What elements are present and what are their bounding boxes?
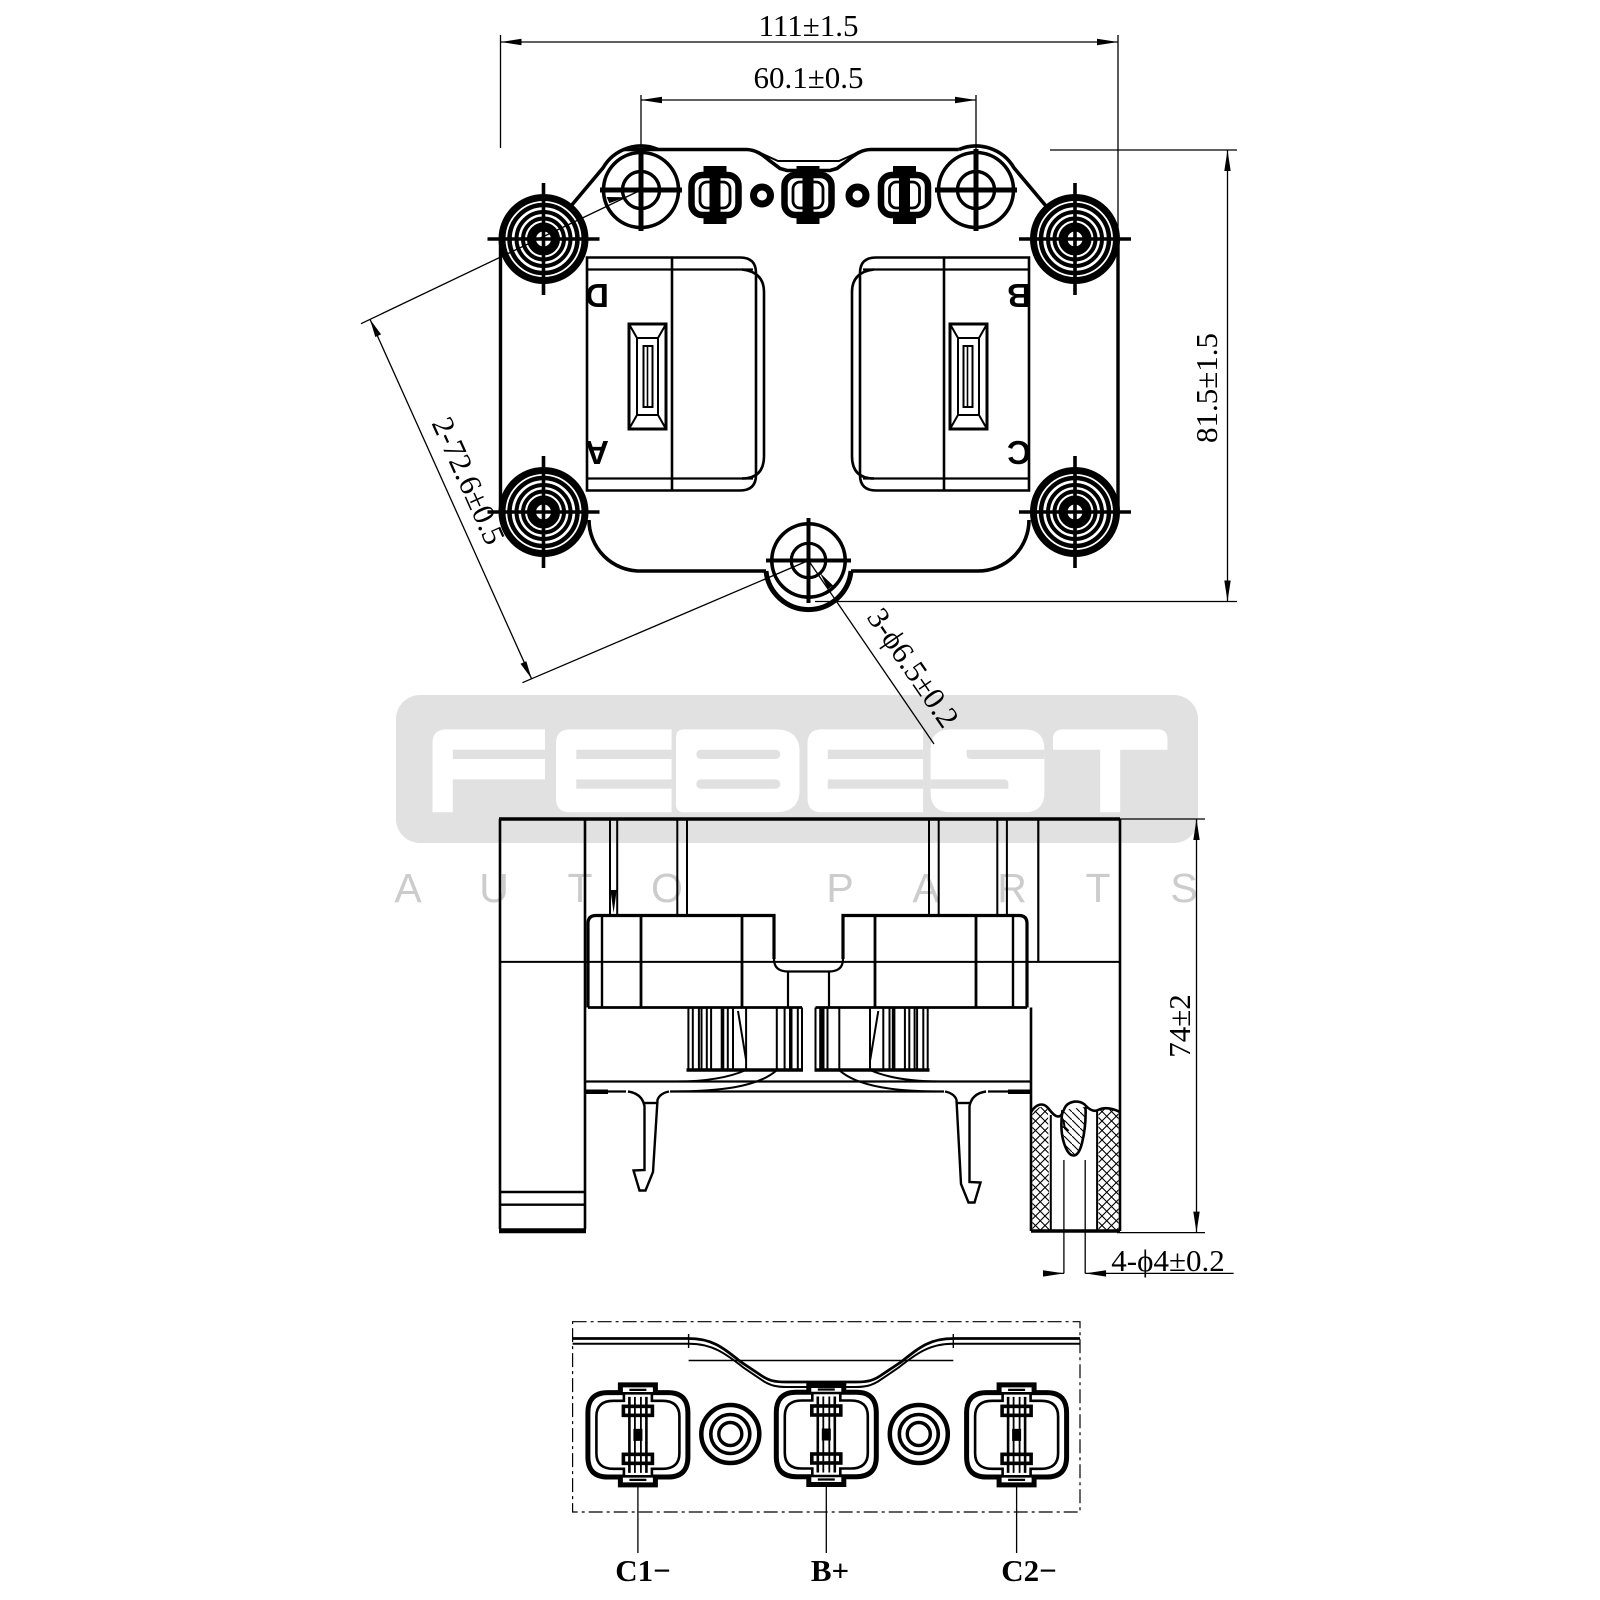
svg-text:4-ϕ4±0.2: 4-ϕ4±0.2	[1111, 1243, 1224, 1278]
svg-text:81.5±1.5: 81.5±1.5	[1189, 333, 1224, 443]
svg-text:S: S	[1170, 865, 1197, 911]
svg-text:D: D	[585, 277, 609, 314]
svg-text:74±2: 74±2	[1162, 994, 1197, 1058]
svg-text:P: P	[826, 865, 853, 911]
svg-text:B: B	[1007, 277, 1031, 314]
svg-text:111±1.5: 111±1.5	[759, 8, 859, 43]
svg-text:A: A	[394, 865, 422, 911]
svg-text:60.1±0.5: 60.1±0.5	[753, 60, 863, 95]
svg-text:C2−: C2−	[1001, 1553, 1057, 1588]
svg-text:T: T	[1085, 865, 1110, 911]
svg-text:B+: B+	[811, 1553, 849, 1588]
svg-text:R: R	[997, 865, 1027, 911]
svg-text:C1−: C1−	[615, 1553, 671, 1588]
svg-text:A: A	[585, 434, 609, 471]
svg-text:A: A	[912, 865, 940, 911]
svg-text:C: C	[1007, 434, 1031, 471]
svg-text:T: T	[567, 865, 592, 911]
svg-text:U: U	[479, 865, 509, 911]
